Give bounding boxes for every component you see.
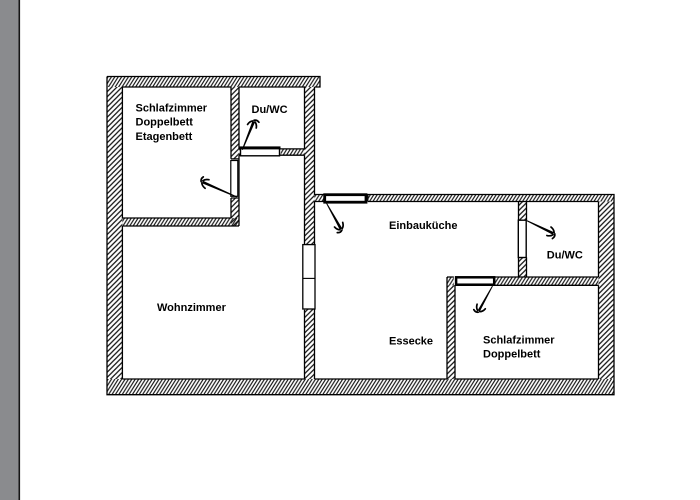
svg-text:Doppelbett: Doppelbett [483,349,541,361]
svg-text:Schlafzimmer: Schlafzimmer [483,335,555,347]
svg-text:Essecke: Essecke [389,336,433,348]
svg-text:Du/WC: Du/WC [547,250,583,262]
svg-text:Einbauküche: Einbauküche [389,220,457,232]
svg-text:Schlafzimmer: Schlafzimmer [136,102,208,114]
svg-text:Du/WC: Du/WC [252,104,288,116]
svg-text:Doppelbett: Doppelbett [136,117,194,129]
svg-text:Wohnzimmer: Wohnzimmer [157,302,227,314]
svg-text:Etagenbett: Etagenbett [136,131,193,143]
